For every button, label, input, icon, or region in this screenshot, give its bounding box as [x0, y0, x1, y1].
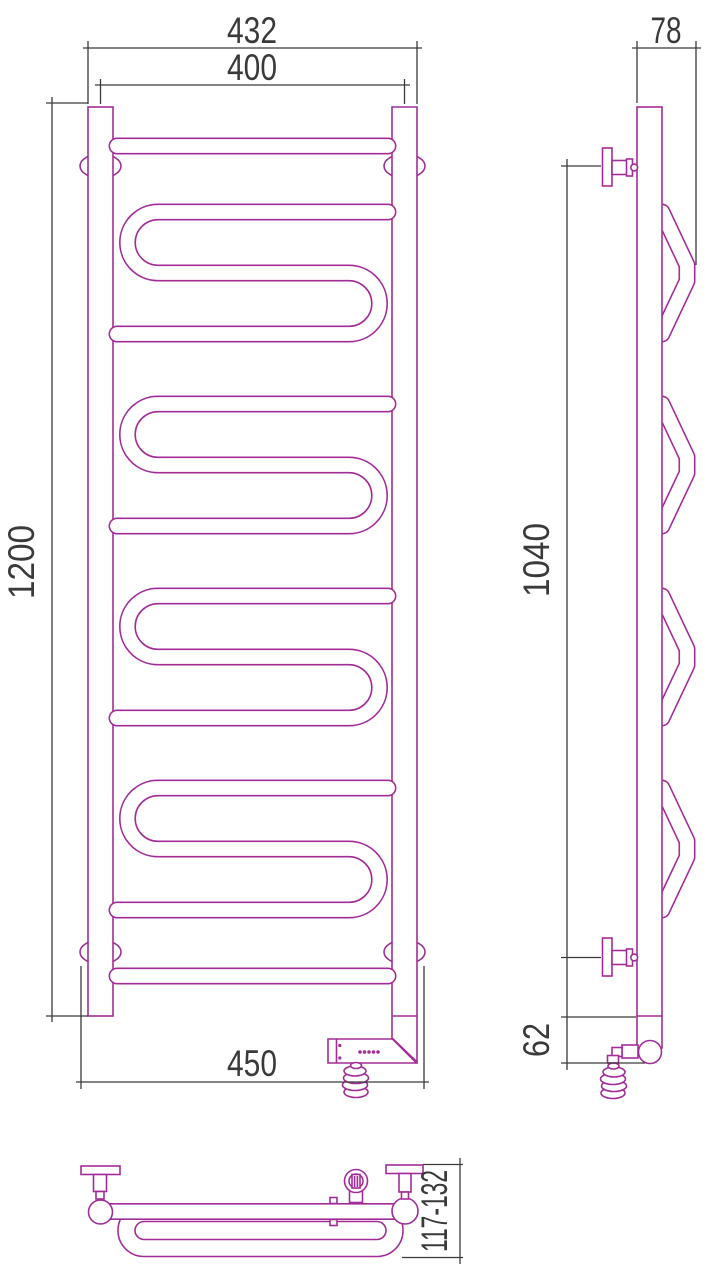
element-screw: [338, 1056, 341, 1059]
bracket-stem: [94, 1175, 107, 1192]
bracket-plate: [81, 1166, 120, 1175]
dim-height: 1200: [1, 97, 88, 1022]
side-coil-4: [662, 788, 687, 910]
coil-loop: [608, 1063, 619, 1069]
left-rail: [88, 107, 113, 1016]
bracket-cap: [631, 954, 638, 961]
serpentine-coil-4: [117, 788, 388, 910]
dim-label-1040: 1040: [516, 523, 557, 597]
element-screw: [338, 1044, 341, 1047]
element-flange-tab: [330, 1198, 337, 1204]
technical-drawing-canvas: 432 400 1200 450 78: [0, 0, 717, 1280]
dim-bracket-span: 1040: [516, 159, 601, 1070]
coil-inner-outline: [135, 1222, 386, 1240]
plan-view: [81, 1165, 423, 1257]
side-coil-2: [662, 404, 687, 526]
dim-label-432: 432: [227, 10, 277, 51]
bracket-plate: [603, 938, 613, 976]
dim-axis-width: 400: [95, 47, 410, 104]
power-cord-coil: [343, 1063, 369, 1098]
dim-label-62: 62: [516, 1023, 557, 1057]
side-wall-bracket-bottom: [603, 938, 638, 976]
side-power-cord-coil: [601, 1063, 627, 1099]
side-view: [601, 107, 688, 1099]
bracket-stem: [399, 1174, 411, 1193]
gland-core: [352, 1175, 360, 1189]
technical-drawing-page: 432 400 1200 450 78: [0, 0, 717, 1280]
bracket-stem: [612, 951, 627, 965]
dim-label-400: 400: [227, 47, 277, 88]
right-rail: [392, 107, 417, 1062]
side-coil-3: [662, 596, 687, 718]
plan-wall-bracket-left: [81, 1166, 120, 1199]
dim-label-450: 450: [227, 1043, 277, 1084]
serpentine-coil-1: [117, 212, 388, 334]
bracket-plate: [603, 148, 613, 186]
cable-gland: [345, 1170, 368, 1203]
bracket-cap: [631, 164, 638, 171]
bracket-collar: [402, 1192, 409, 1199]
coil-loop: [351, 1063, 362, 1069]
side-element-cap: [639, 1041, 662, 1064]
side-wall-bracket-top: [603, 148, 638, 186]
side-coil-1: [662, 212, 687, 334]
serpentine-coil-3: [117, 596, 388, 718]
dim-label-117-132: 117-132: [414, 1170, 455, 1252]
front-view: [80, 107, 425, 1098]
bracket-stem: [612, 161, 627, 175]
dim-label-78: 78: [651, 10, 682, 51]
side-cable-elbow: [608, 1045, 639, 1063]
serpentine-coil-2: [117, 404, 388, 526]
bracket-collar: [96, 1192, 104, 1200]
side-rail: [637, 107, 662, 1048]
dim-label-1200: 1200: [1, 525, 42, 599]
element-flange-tab: [330, 1220, 337, 1226]
plan-bracket-ball: [89, 1200, 113, 1224]
